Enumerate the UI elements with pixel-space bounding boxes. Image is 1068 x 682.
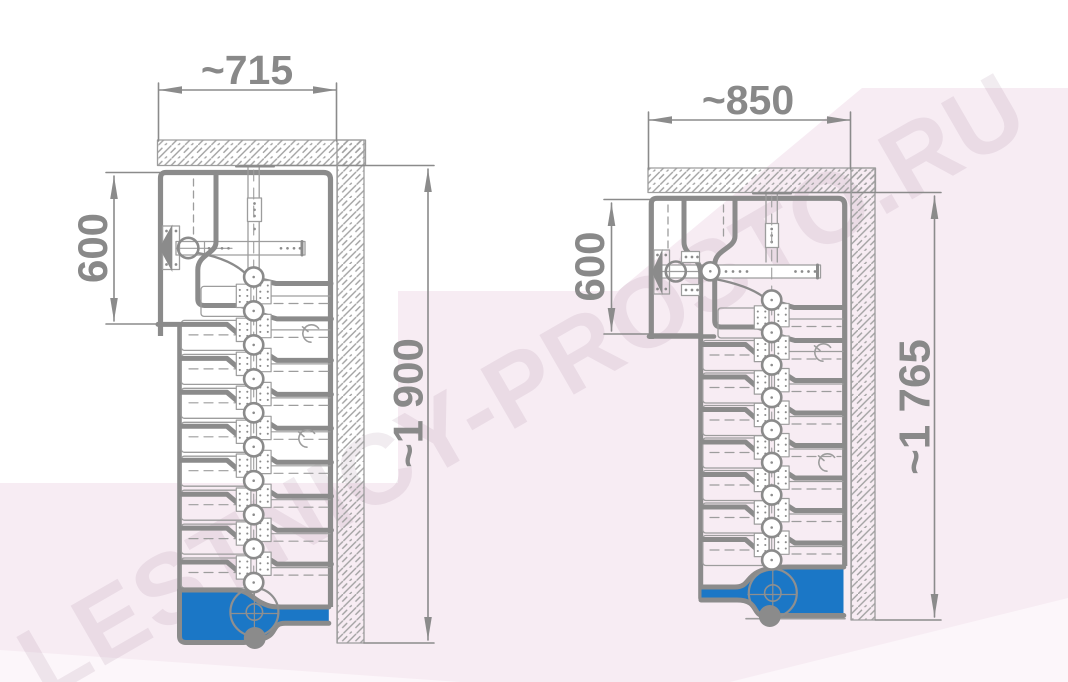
svg-text:600: 600 [566,231,613,301]
svg-text:~1 765: ~1 765 [891,339,940,475]
svg-text:~1 900: ~1 900 [385,338,432,468]
svg-text:600: 600 [69,213,116,283]
svg-text:~850: ~850 [702,77,794,123]
svg-text:~715: ~715 [201,47,293,93]
